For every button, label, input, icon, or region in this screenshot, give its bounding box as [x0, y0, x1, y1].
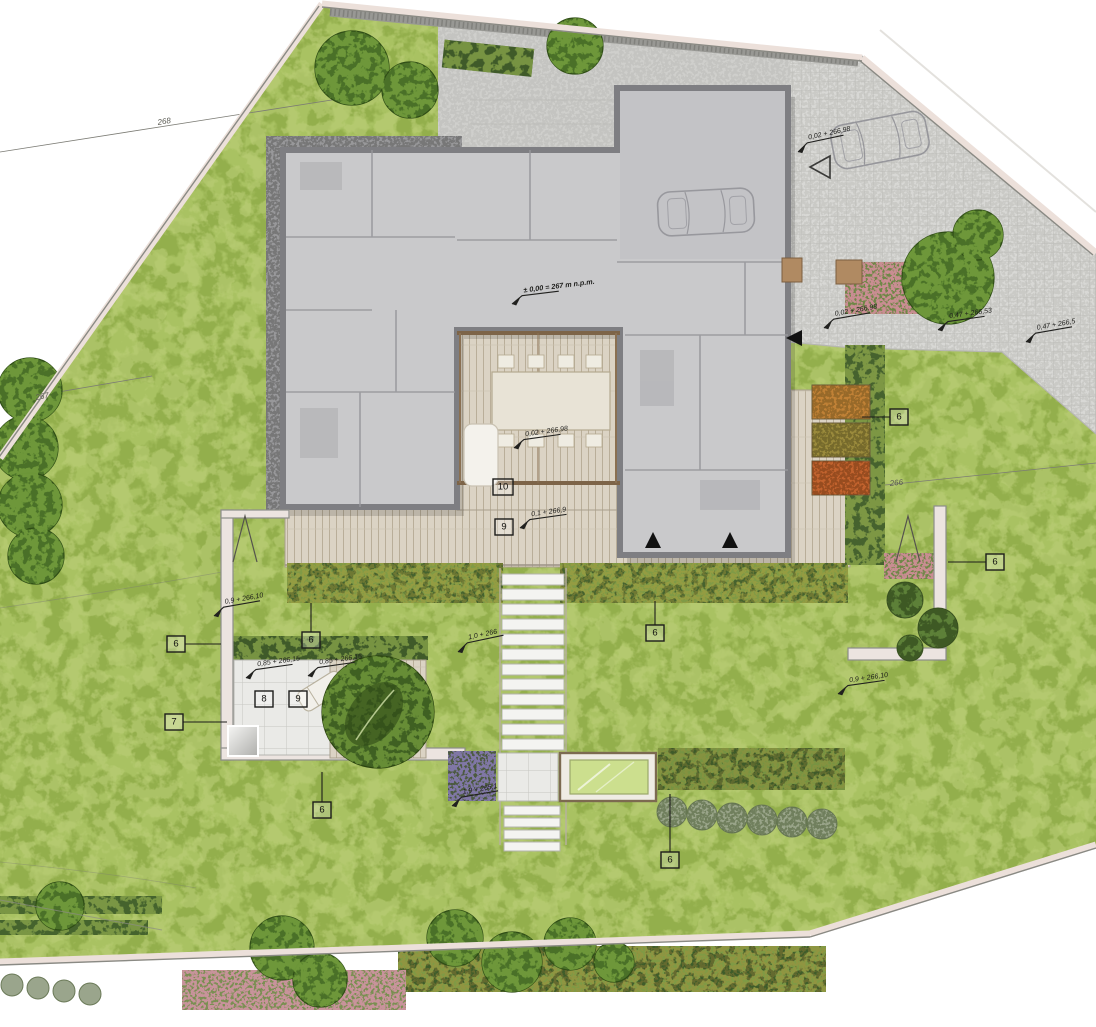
marker-9: 9	[289, 691, 307, 707]
marker-6: 6	[302, 632, 320, 648]
sofa	[464, 424, 498, 486]
garden-stairs	[500, 568, 566, 851]
svg-text:6: 6	[992, 557, 997, 568]
svg-text:6: 6	[652, 628, 657, 639]
svg-text:6: 6	[896, 412, 901, 423]
marker-8: 8	[255, 691, 273, 707]
marker-10: 10	[493, 479, 513, 495]
outdoor-shower-tray	[228, 726, 258, 756]
marker-6: 6	[661, 852, 679, 868]
patio-hedge	[232, 636, 428, 660]
planter-boxes	[812, 385, 870, 495]
svg-text:6: 6	[308, 635, 313, 646]
contour-label-266: 266	[888, 478, 904, 489]
svg-text:6: 6	[667, 855, 672, 866]
marker-6: 6	[167, 636, 185, 652]
southeast-hedge	[658, 748, 845, 790]
marker-6: 6	[313, 802, 331, 818]
svg-text:9: 9	[295, 694, 300, 705]
landscape-site-plan: 268 267 266 ± 0,00 = 267 m n.p.m. 0,02 +…	[0, 0, 1096, 1027]
water-feature	[560, 753, 656, 801]
patio-tree	[322, 656, 434, 768]
marker-9: 9	[495, 519, 513, 535]
marker-6: 6	[890, 409, 908, 425]
svg-text:7: 7	[171, 717, 176, 728]
dining-table	[492, 372, 610, 430]
marker-7: 7	[165, 714, 183, 730]
marker-6: 6	[646, 625, 664, 641]
marker-6: 6	[986, 554, 1004, 570]
svg-text:10: 10	[498, 482, 509, 493]
landing	[448, 751, 656, 801]
svg-text:6: 6	[319, 805, 324, 816]
svg-text:9: 9	[501, 522, 506, 533]
svg-text:8: 8	[261, 694, 266, 705]
svg-text:6: 6	[173, 639, 178, 650]
